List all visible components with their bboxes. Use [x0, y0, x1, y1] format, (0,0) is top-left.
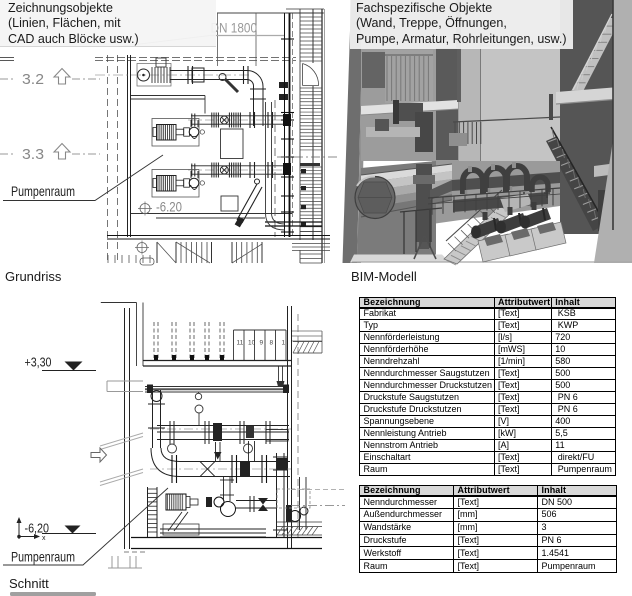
svg-text:DN 1800: DN 1800 [211, 20, 258, 36]
svg-text:9: 9 [260, 340, 264, 347]
svg-text:3.3: 3.3 [22, 146, 44, 163]
svg-text:Pumpenraum: Pumpenraum [11, 183, 75, 199]
svg-text:Pumpenraum: Pumpenraum [11, 549, 75, 565]
svg-text:+3,30: +3,30 [25, 355, 52, 370]
svg-text:8: 8 [270, 340, 274, 347]
svg-text:1: 1 [282, 340, 286, 347]
svg-text:-6.20: -6.20 [156, 199, 182, 215]
svg-text:11: 11 [237, 340, 244, 347]
svg-text:3.2: 3.2 [22, 71, 44, 88]
svg-text:10: 10 [248, 340, 256, 347]
svg-text:x: x [42, 535, 46, 542]
